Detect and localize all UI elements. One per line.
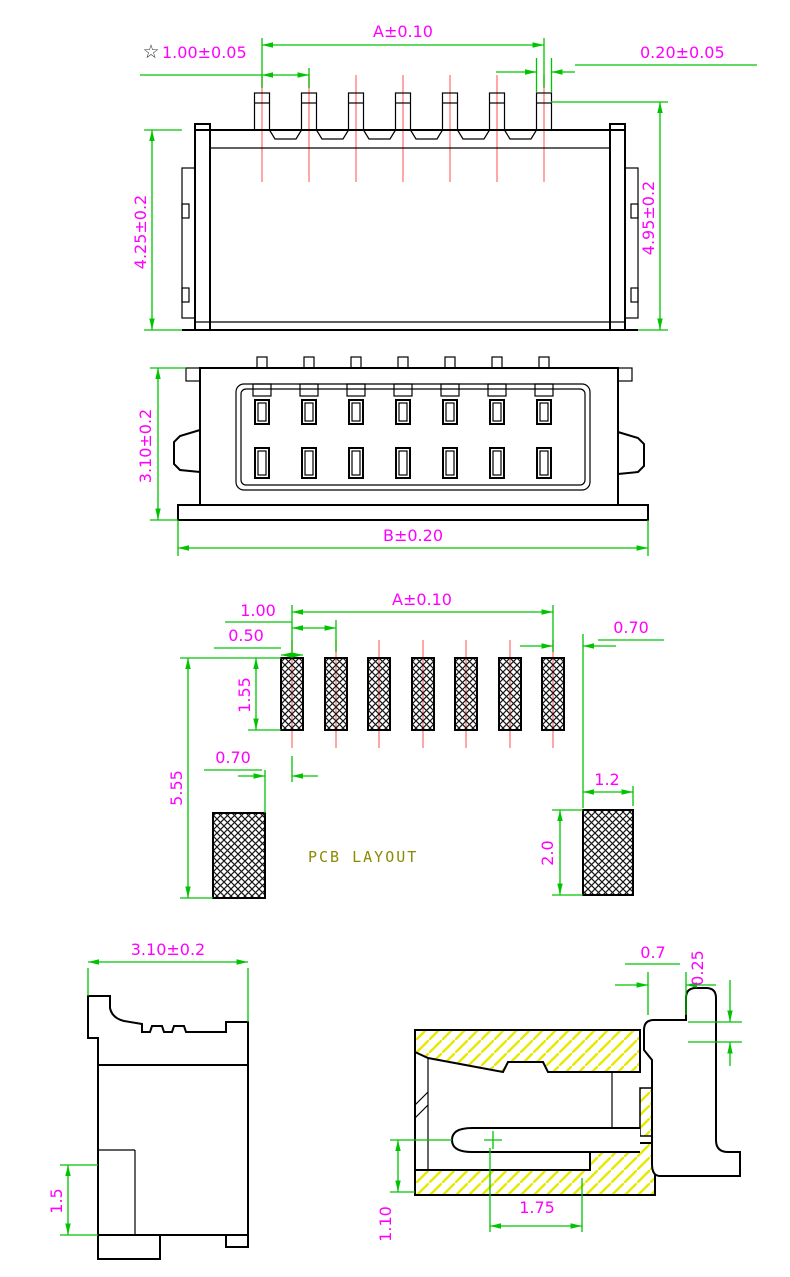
dim-label-left-gap: 0.70 (215, 748, 251, 767)
tab (398, 357, 408, 368)
technical-drawing: A±0.10 ☆ 1.00±0.05 0.20±0.05 4.25±0.2 (0, 0, 790, 1277)
pin (255, 75, 270, 182)
tab (492, 357, 502, 368)
dim-label-pad-span: A±0.10 (392, 590, 452, 609)
dim-label-pad-width: 0.50 (228, 626, 264, 645)
plan-view: 3.10±0.2 B±0.20 (136, 357, 648, 556)
side-view: 3.10±0.2 1.5 (47, 940, 248, 1259)
dim-pin-width: 0.20±0.05 (496, 43, 757, 92)
contact-slot (537, 400, 551, 424)
pcb-layout-view: A±0.10 1.00 0.50 0.70 1.55 (167, 590, 664, 898)
contact-slot (537, 448, 551, 478)
dim-label-top-gap: 0.7 (640, 943, 665, 962)
contact-slot (255, 400, 269, 424)
pin (443, 75, 458, 182)
tab (445, 357, 455, 368)
dim-side-width: 3.10±0.2 (88, 940, 248, 1022)
dim-overall-length: 5.55 (167, 658, 213, 898)
pcb-pad (542, 640, 564, 748)
pcb-pad (281, 640, 303, 748)
dim-pad-width: 0.50 (214, 626, 303, 655)
pcb-pad (325, 640, 347, 748)
dim-label-side-width: 3.10±0.2 (131, 940, 205, 959)
front-housing (182, 124, 638, 330)
key-slot (535, 384, 553, 396)
anchor-pad-left (213, 813, 265, 898)
tab (539, 357, 549, 368)
key-slot (488, 384, 506, 396)
dim-pad-length: 1.55 (180, 658, 281, 730)
dim-label-anchor-width: 1.2 (594, 770, 619, 789)
dim-overall-width: B±0.20 (178, 520, 648, 556)
key-slot (300, 384, 318, 396)
section-housing (415, 1030, 668, 1195)
contact-slot (255, 448, 269, 478)
section-contact (452, 988, 740, 1176)
dim-label-pitch: 1.00±0.05 (162, 43, 247, 62)
pcb-pad (499, 640, 521, 748)
dim-label-body-height: 4.25±0.2 (131, 195, 150, 269)
section-view: 0.7 0.25 1.10 1.75 (376, 943, 742, 1242)
dim-anchor-height: 2.0 (538, 810, 583, 895)
dim-label-contact-depth: 1.75 (519, 1198, 555, 1217)
dim-label-pad-length: 1.55 (235, 677, 254, 713)
star-icon: ☆ (142, 41, 159, 63)
dim-label-pitch-span: A±0.10 (373, 22, 433, 41)
dim-depth: 3.10±0.2 (136, 368, 186, 520)
pin (490, 75, 505, 182)
contact-slot (349, 448, 363, 478)
pcb-pad (412, 640, 434, 748)
dim-label-right-gap: 0.70 (613, 618, 649, 637)
dim-left-gap: 0.70 (204, 748, 318, 813)
pin (302, 75, 317, 182)
pcb-pad (455, 640, 477, 748)
dim-label-depth: 3.10±0.2 (136, 409, 155, 483)
pin (537, 75, 552, 182)
tab (351, 357, 361, 368)
contact-slot (490, 400, 504, 424)
dim-label-overall-length: 5.55 (167, 770, 186, 806)
dim-standoff: 1.5 (47, 1165, 98, 1235)
dim-body-height: 4.25±0.2 (131, 130, 182, 330)
tab (304, 357, 314, 368)
dim-label-overall-height: 4.95±0.2 (639, 181, 658, 255)
dim-pitch: ☆ 1.00±0.05 (140, 41, 309, 88)
contact-slot (349, 400, 363, 424)
key-slot (441, 384, 459, 396)
dim-label-standoff: 1.5 (47, 1188, 66, 1213)
dim-label-anchor-height: 2.0 (538, 840, 557, 865)
contact-slot (443, 448, 457, 478)
dim-label-pin-width: 0.20±0.05 (640, 43, 725, 62)
key-slot (394, 384, 412, 396)
anchor-pad-right (583, 810, 633, 895)
tab (257, 357, 267, 368)
contact-slot (443, 400, 457, 424)
contact-slot (396, 400, 410, 424)
key-slot (347, 384, 365, 396)
pcb-layout-label: PCB LAYOUT (308, 848, 418, 866)
drawing-page: A±0.10 ☆ 1.00±0.05 0.20±0.05 4.25±0.2 (0, 0, 790, 1277)
pin (396, 75, 411, 182)
dim-label-cavity-height: 1.10 (376, 1206, 395, 1242)
contact-slot (490, 448, 504, 478)
contact-slot (302, 400, 316, 424)
dim-label-lead-thickness: 0.25 (688, 950, 707, 986)
contact-slot (396, 448, 410, 478)
dim-label-overall-width: B±0.20 (383, 526, 443, 545)
contact-slot (302, 448, 316, 478)
key-slot (253, 384, 271, 396)
side-profile (88, 996, 248, 1259)
pcb-pad (368, 640, 390, 748)
pin (349, 75, 364, 182)
front-view: A±0.10 ☆ 1.00±0.05 0.20±0.05 4.25±0.2 (131, 22, 757, 330)
plan-housing (174, 368, 648, 520)
dim-label-pad-pitch: 1.00 (240, 601, 276, 620)
dim-anchor-width: 1.2 (583, 770, 633, 806)
